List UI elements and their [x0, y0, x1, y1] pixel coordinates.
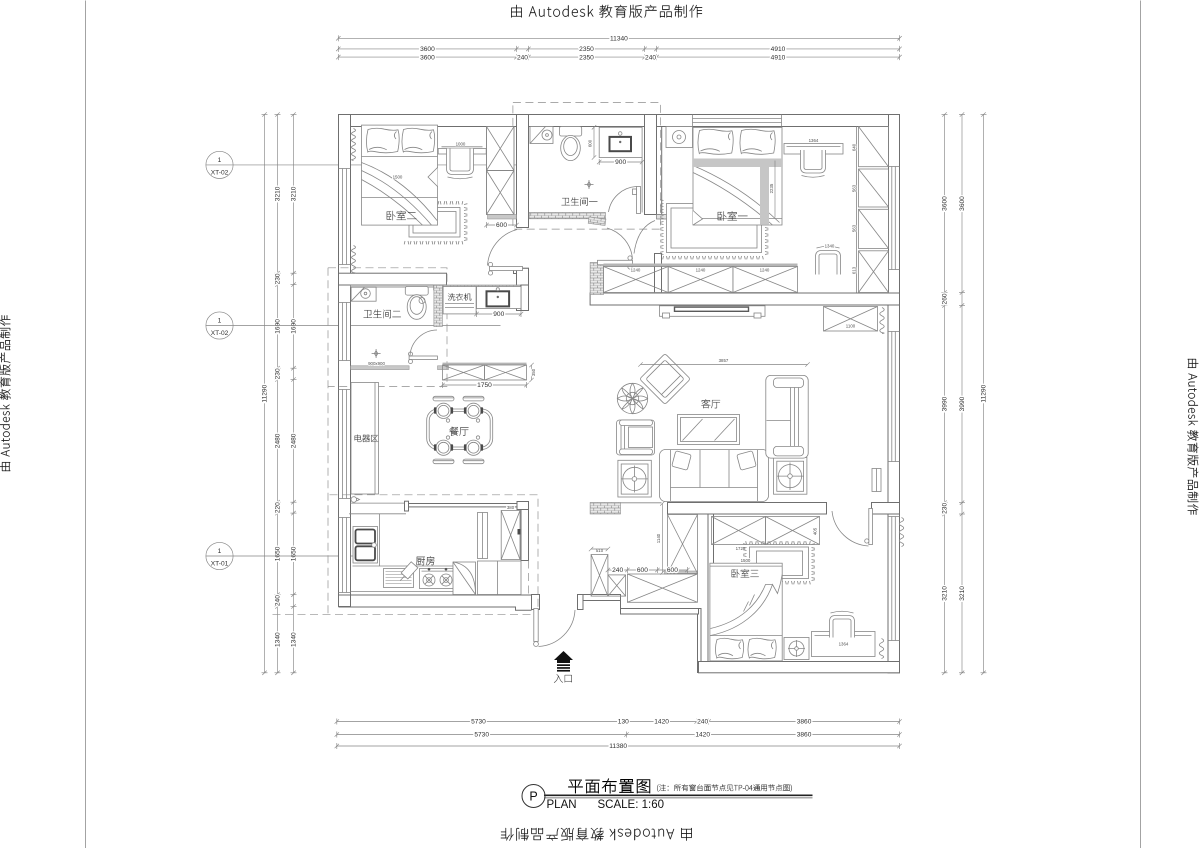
svg-text:1: 1 [218, 318, 222, 325]
svg-text:1: 1 [218, 157, 222, 164]
svg-text:1240: 1240 [760, 268, 770, 273]
svg-text:600: 600 [667, 567, 678, 574]
svg-text:900: 900 [493, 311, 504, 318]
svg-text:240: 240 [275, 595, 282, 606]
svg-text:130: 130 [618, 719, 629, 726]
svg-text:260: 260 [942, 293, 949, 304]
svg-text:1140: 1140 [656, 533, 661, 543]
svg-text:2350: 2350 [579, 54, 594, 61]
svg-text:XT-02: XT-02 [211, 169, 229, 176]
svg-text:XT-01: XT-01 [211, 561, 229, 568]
svg-text:11290: 11290 [262, 384, 269, 402]
svg-text:4910: 4910 [771, 54, 786, 61]
svg-text:3210: 3210 [291, 186, 298, 201]
svg-text:5730: 5730 [471, 719, 486, 726]
svg-text:230: 230 [275, 368, 282, 379]
svg-text:3860: 3860 [797, 719, 812, 726]
svg-text:2480: 2480 [275, 433, 282, 448]
svg-text:240: 240 [612, 567, 623, 574]
svg-text:240: 240 [697, 719, 708, 726]
svg-text:3857: 3857 [719, 358, 729, 363]
svg-text:3990: 3990 [959, 396, 966, 411]
svg-text:PLAN: PLAN [547, 799, 577, 811]
svg-text:1690: 1690 [291, 319, 298, 334]
svg-text:1650: 1650 [291, 546, 298, 561]
svg-text:405: 405 [813, 527, 818, 535]
svg-text:230: 230 [942, 503, 949, 514]
svg-text:600: 600 [637, 567, 648, 574]
svg-text:3600: 3600 [420, 54, 435, 61]
svg-text:240: 240 [517, 54, 528, 61]
svg-text:11340: 11340 [610, 36, 628, 43]
svg-text:1340: 1340 [825, 244, 835, 249]
svg-text:900x900: 900x900 [368, 361, 385, 366]
svg-text:1500: 1500 [393, 175, 403, 180]
svg-text:1364: 1364 [809, 138, 819, 143]
svg-text:3600: 3600 [959, 196, 966, 211]
svg-text:XT-02: XT-02 [211, 330, 229, 337]
svg-text:4910: 4910 [771, 46, 786, 53]
svg-text:1340: 1340 [275, 632, 282, 647]
svg-text:220: 220 [275, 502, 282, 513]
svg-text:380: 380 [507, 505, 515, 510]
svg-text:3210: 3210 [275, 186, 282, 201]
svg-text:1650: 1650 [275, 546, 282, 561]
svg-text:900: 900 [615, 159, 626, 166]
svg-text:1420: 1420 [654, 719, 669, 726]
svg-text:5730: 5730 [474, 732, 489, 739]
svg-text:3210: 3210 [942, 586, 949, 601]
svg-text:240: 240 [645, 54, 656, 61]
svg-text:3990: 3990 [942, 396, 949, 411]
svg-text:2235: 2235 [769, 183, 774, 193]
svg-text:1420: 1420 [695, 732, 710, 739]
svg-text:1100: 1100 [846, 324, 856, 329]
svg-text:613: 613 [852, 266, 857, 274]
svg-text:1750: 1750 [477, 382, 492, 389]
svg-text:1000: 1000 [456, 142, 466, 147]
svg-text:563: 563 [852, 224, 857, 232]
svg-text:3600: 3600 [942, 196, 949, 211]
svg-text:230: 230 [275, 273, 282, 284]
svg-text:600: 600 [588, 139, 593, 147]
svg-text:1500: 1500 [741, 558, 751, 563]
svg-text:563: 563 [852, 184, 857, 192]
svg-text:3210: 3210 [959, 586, 966, 601]
svg-text:1240: 1240 [696, 268, 706, 273]
svg-text:1340: 1340 [291, 632, 298, 647]
svg-text:11380: 11380 [609, 743, 627, 750]
svg-text:350: 350 [531, 368, 536, 376]
svg-text:SCALE: 1:60: SCALE: 1:60 [598, 799, 664, 811]
svg-text:2480: 2480 [291, 433, 298, 448]
svg-text:1240: 1240 [631, 268, 641, 273]
svg-text:3860: 3860 [797, 732, 812, 739]
svg-text:11290: 11290 [981, 384, 988, 402]
svg-text:1364: 1364 [839, 642, 849, 647]
svg-text:2350: 2350 [579, 46, 594, 53]
svg-text:1690: 1690 [275, 319, 282, 334]
svg-text:1: 1 [218, 548, 222, 555]
svg-text:640: 640 [852, 143, 857, 151]
svg-text:600: 600 [496, 222, 507, 229]
svg-text:P: P [529, 790, 537, 804]
svg-text:3600: 3600 [420, 46, 435, 53]
